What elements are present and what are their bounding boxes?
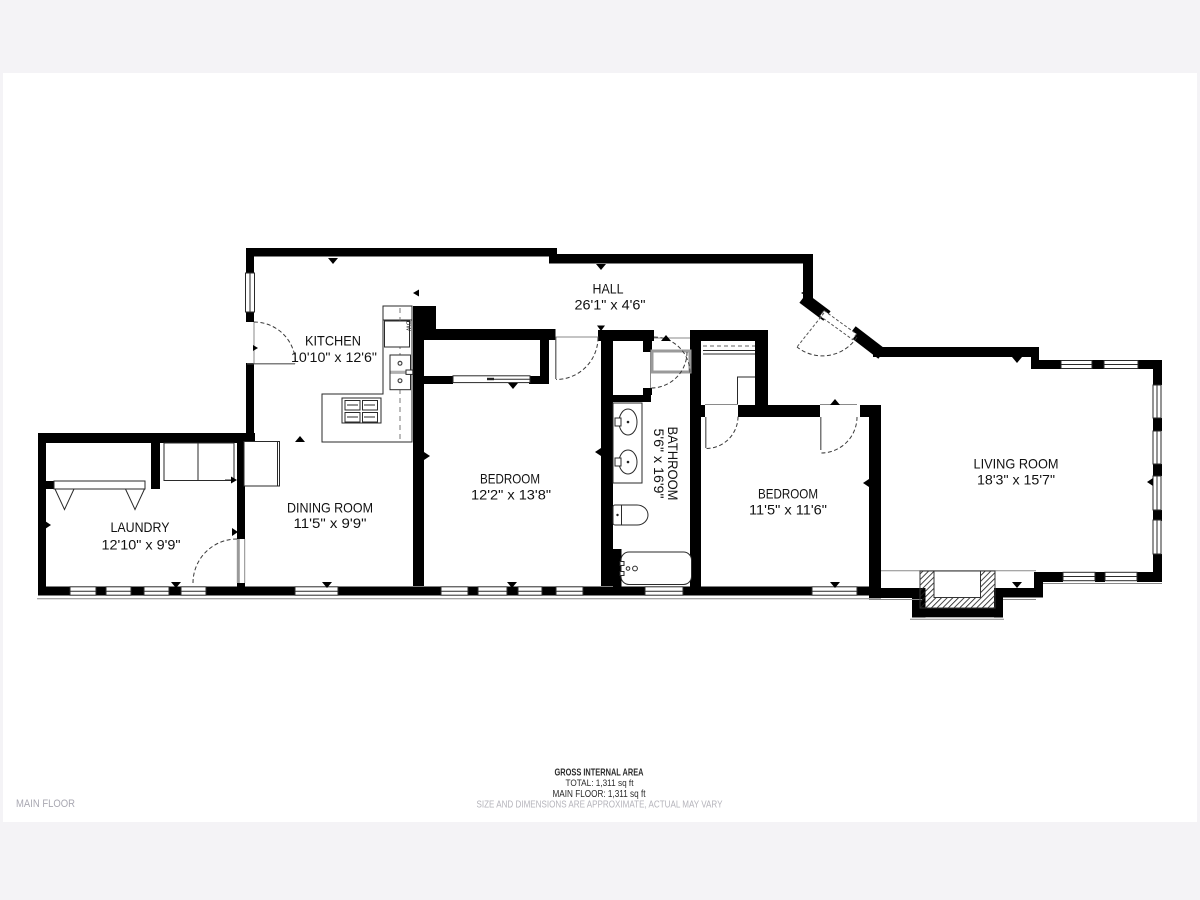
svg-text:KITCHEN: KITCHEN (305, 333, 361, 349)
svg-text:HALL: HALL (593, 281, 624, 297)
svg-text:12'2" x 13'8": 12'2" x 13'8" (471, 488, 551, 503)
svg-text:11'5" x 9'9": 11'5" x 9'9" (294, 516, 367, 531)
svg-text:18'3" x 15'7": 18'3" x 15'7" (977, 473, 1055, 488)
svg-text:TOTAL: 1,311 sq ft: TOTAL: 1,311 sq ft (566, 778, 634, 789)
svg-text:10'10" x 12'6": 10'10" x 12'6" (291, 350, 377, 365)
svg-text:26'1" x 4'6": 26'1" x 4'6" (575, 298, 646, 313)
svg-text:GROSS INTERNAL AREA: GROSS INTERNAL AREA (555, 768, 644, 779)
svg-text:DINING ROOM: DINING ROOM (287, 500, 373, 516)
svg-text:MAIN FLOOR: 1,311 sq ft: MAIN FLOOR: 1,311 sq ft (553, 789, 646, 800)
svg-text:LAUNDRY: LAUNDRY (111, 519, 171, 535)
svg-text:BEDROOM: BEDROOM (758, 486, 818, 502)
svg-text:MAIN FLOOR: MAIN FLOOR (16, 798, 75, 810)
svg-text:12'10" x 9'9": 12'10" x 9'9" (102, 538, 181, 553)
svg-text:LIVING ROOM: LIVING ROOM (974, 456, 1059, 472)
svg-text:5'6" x 16'9": 5'6" x 16'9" (651, 429, 666, 499)
svg-text:DW: DW (405, 321, 411, 331)
svg-text:SIZE AND DIMENSIONS ARE APPROX: SIZE AND DIMENSIONS ARE APPROXIMATE, ACT… (477, 800, 723, 811)
svg-text:BEDROOM: BEDROOM (480, 471, 540, 487)
svg-text:BATHROOM: BATHROOM (665, 427, 681, 501)
svg-text:11'5" x 11'6": 11'5" x 11'6" (749, 503, 827, 518)
